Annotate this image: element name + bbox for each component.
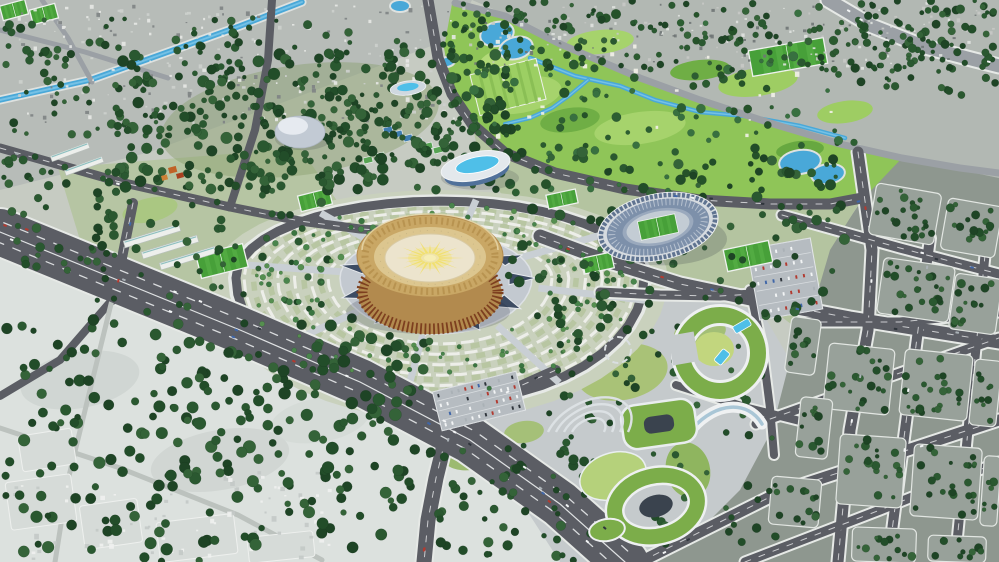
city-block [910, 443, 983, 520]
vehicle [709, 197, 713, 199]
masterplan-render: Aerial 3D masterplan rendering: golden c… [0, 0, 999, 562]
city-block [939, 197, 999, 258]
ceremonial-hall [357, 214, 503, 334]
city-block [836, 433, 907, 508]
city-block [768, 476, 823, 528]
vehicle [423, 548, 425, 552]
city-block [868, 183, 942, 246]
city-block [928, 535, 987, 562]
city-block [823, 342, 896, 415]
city-block [898, 349, 973, 422]
road-district-north [600, 292, 752, 296]
vehicle [761, 203, 765, 205]
city-block [948, 273, 999, 335]
scene-svg: Aerial 3D masterplan rendering: golden c… [0, 0, 999, 562]
sports-dome [275, 116, 325, 148]
city-block [851, 527, 917, 562]
city-block [794, 396, 833, 459]
city-block [876, 257, 955, 322]
vehicle [870, 279, 872, 283]
